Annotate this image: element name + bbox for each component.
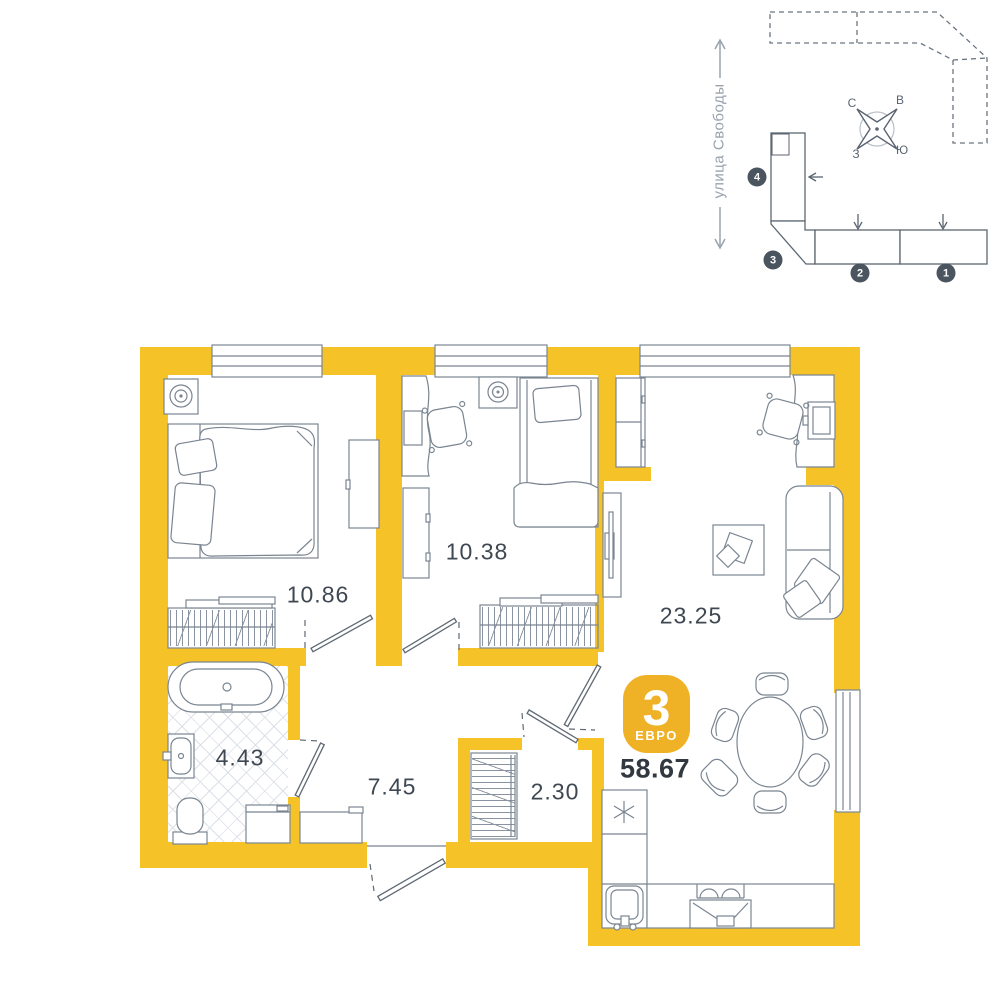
floorplan-page: улица Свободы С В З Ю 4 3 2 1 10.86 10.3… [0, 0, 1000, 1000]
window-bedroom-1 [212, 345, 322, 377]
hallway-area-label: 7.45 [368, 774, 417, 801]
closet-area-label: 2.30 [531, 779, 580, 806]
building-section-2 [815, 230, 900, 264]
single-bed [514, 378, 598, 527]
dining-table [737, 697, 803, 787]
desk [402, 376, 430, 476]
dining-chair [709, 706, 741, 744]
building-number-3: 3 [764, 251, 783, 270]
closet-wardrobe [471, 753, 517, 839]
street-name-label: улица Свободы [711, 83, 728, 198]
street-arrow-up [715, 40, 725, 78]
commode [403, 488, 430, 578]
building-section-1 [900, 230, 987, 264]
building-section-4 [771, 133, 805, 221]
bedroom-1-furniture [164, 379, 379, 652]
bathroom-area-label: 4.43 [216, 745, 265, 772]
bathtub [168, 662, 284, 712]
door-bedroom-2 [403, 618, 459, 652]
sofa [783, 486, 843, 619]
balcony-door [836, 690, 860, 812]
wardrobe-tall [346, 440, 379, 528]
entrance-arrow-down-1 [939, 214, 947, 229]
low-wardrobe [480, 595, 598, 648]
tv-stand [603, 493, 621, 597]
compass-north-label: С [848, 96, 857, 110]
door-entrance [367, 846, 446, 901]
building-number-1: 1 [937, 264, 956, 283]
dining-chair [698, 756, 741, 799]
room-count-type: ЕВРО [635, 729, 678, 743]
window-bedroom-2 [435, 345, 547, 377]
room-count-number: 3 [643, 687, 671, 730]
compass-east-label: В [896, 93, 904, 107]
dining-chair [754, 791, 786, 813]
door-living [564, 665, 600, 730]
entrance-arrow-left [809, 173, 823, 181]
compass-south-label: Ю [896, 143, 908, 157]
kitchen-sink [606, 886, 643, 930]
total-area-label: 58.67 [620, 754, 690, 785]
toilet [173, 798, 207, 844]
street-arrow-down [715, 207, 725, 248]
room-count-badge: 3 ЕВРО [623, 675, 690, 753]
bedroom-2-area-label: 10.38 [446, 539, 509, 566]
door-bedroom-1 [305, 615, 372, 651]
niche-wardrobe [616, 378, 645, 467]
compass-west-label: З [852, 147, 859, 161]
dining-chair [756, 673, 788, 695]
living-area-label: 23.25 [660, 603, 723, 630]
building-number-4: 4 [748, 168, 767, 187]
ceiling-light-icon [164, 379, 198, 414]
bedroom-2-furniture [402, 376, 598, 653]
building-number-2: 2 [851, 264, 870, 283]
washing-machine [246, 805, 290, 843]
door-bathroom [295, 740, 324, 797]
bathroom-sink [163, 734, 194, 778]
compass-rose [857, 109, 897, 149]
low-wardrobe [168, 597, 275, 648]
hall-cabinet [300, 807, 363, 843]
ceiling-light-icon [479, 377, 517, 408]
site-plan [715, 12, 987, 264]
coffee-table [713, 525, 764, 575]
bedroom-1-area-label: 10.86 [287, 582, 350, 609]
floorplan-drawing [0, 0, 1000, 1000]
entrance-arrow-down-2 [854, 214, 862, 229]
window-living [640, 345, 790, 377]
double-bed [168, 424, 318, 558]
